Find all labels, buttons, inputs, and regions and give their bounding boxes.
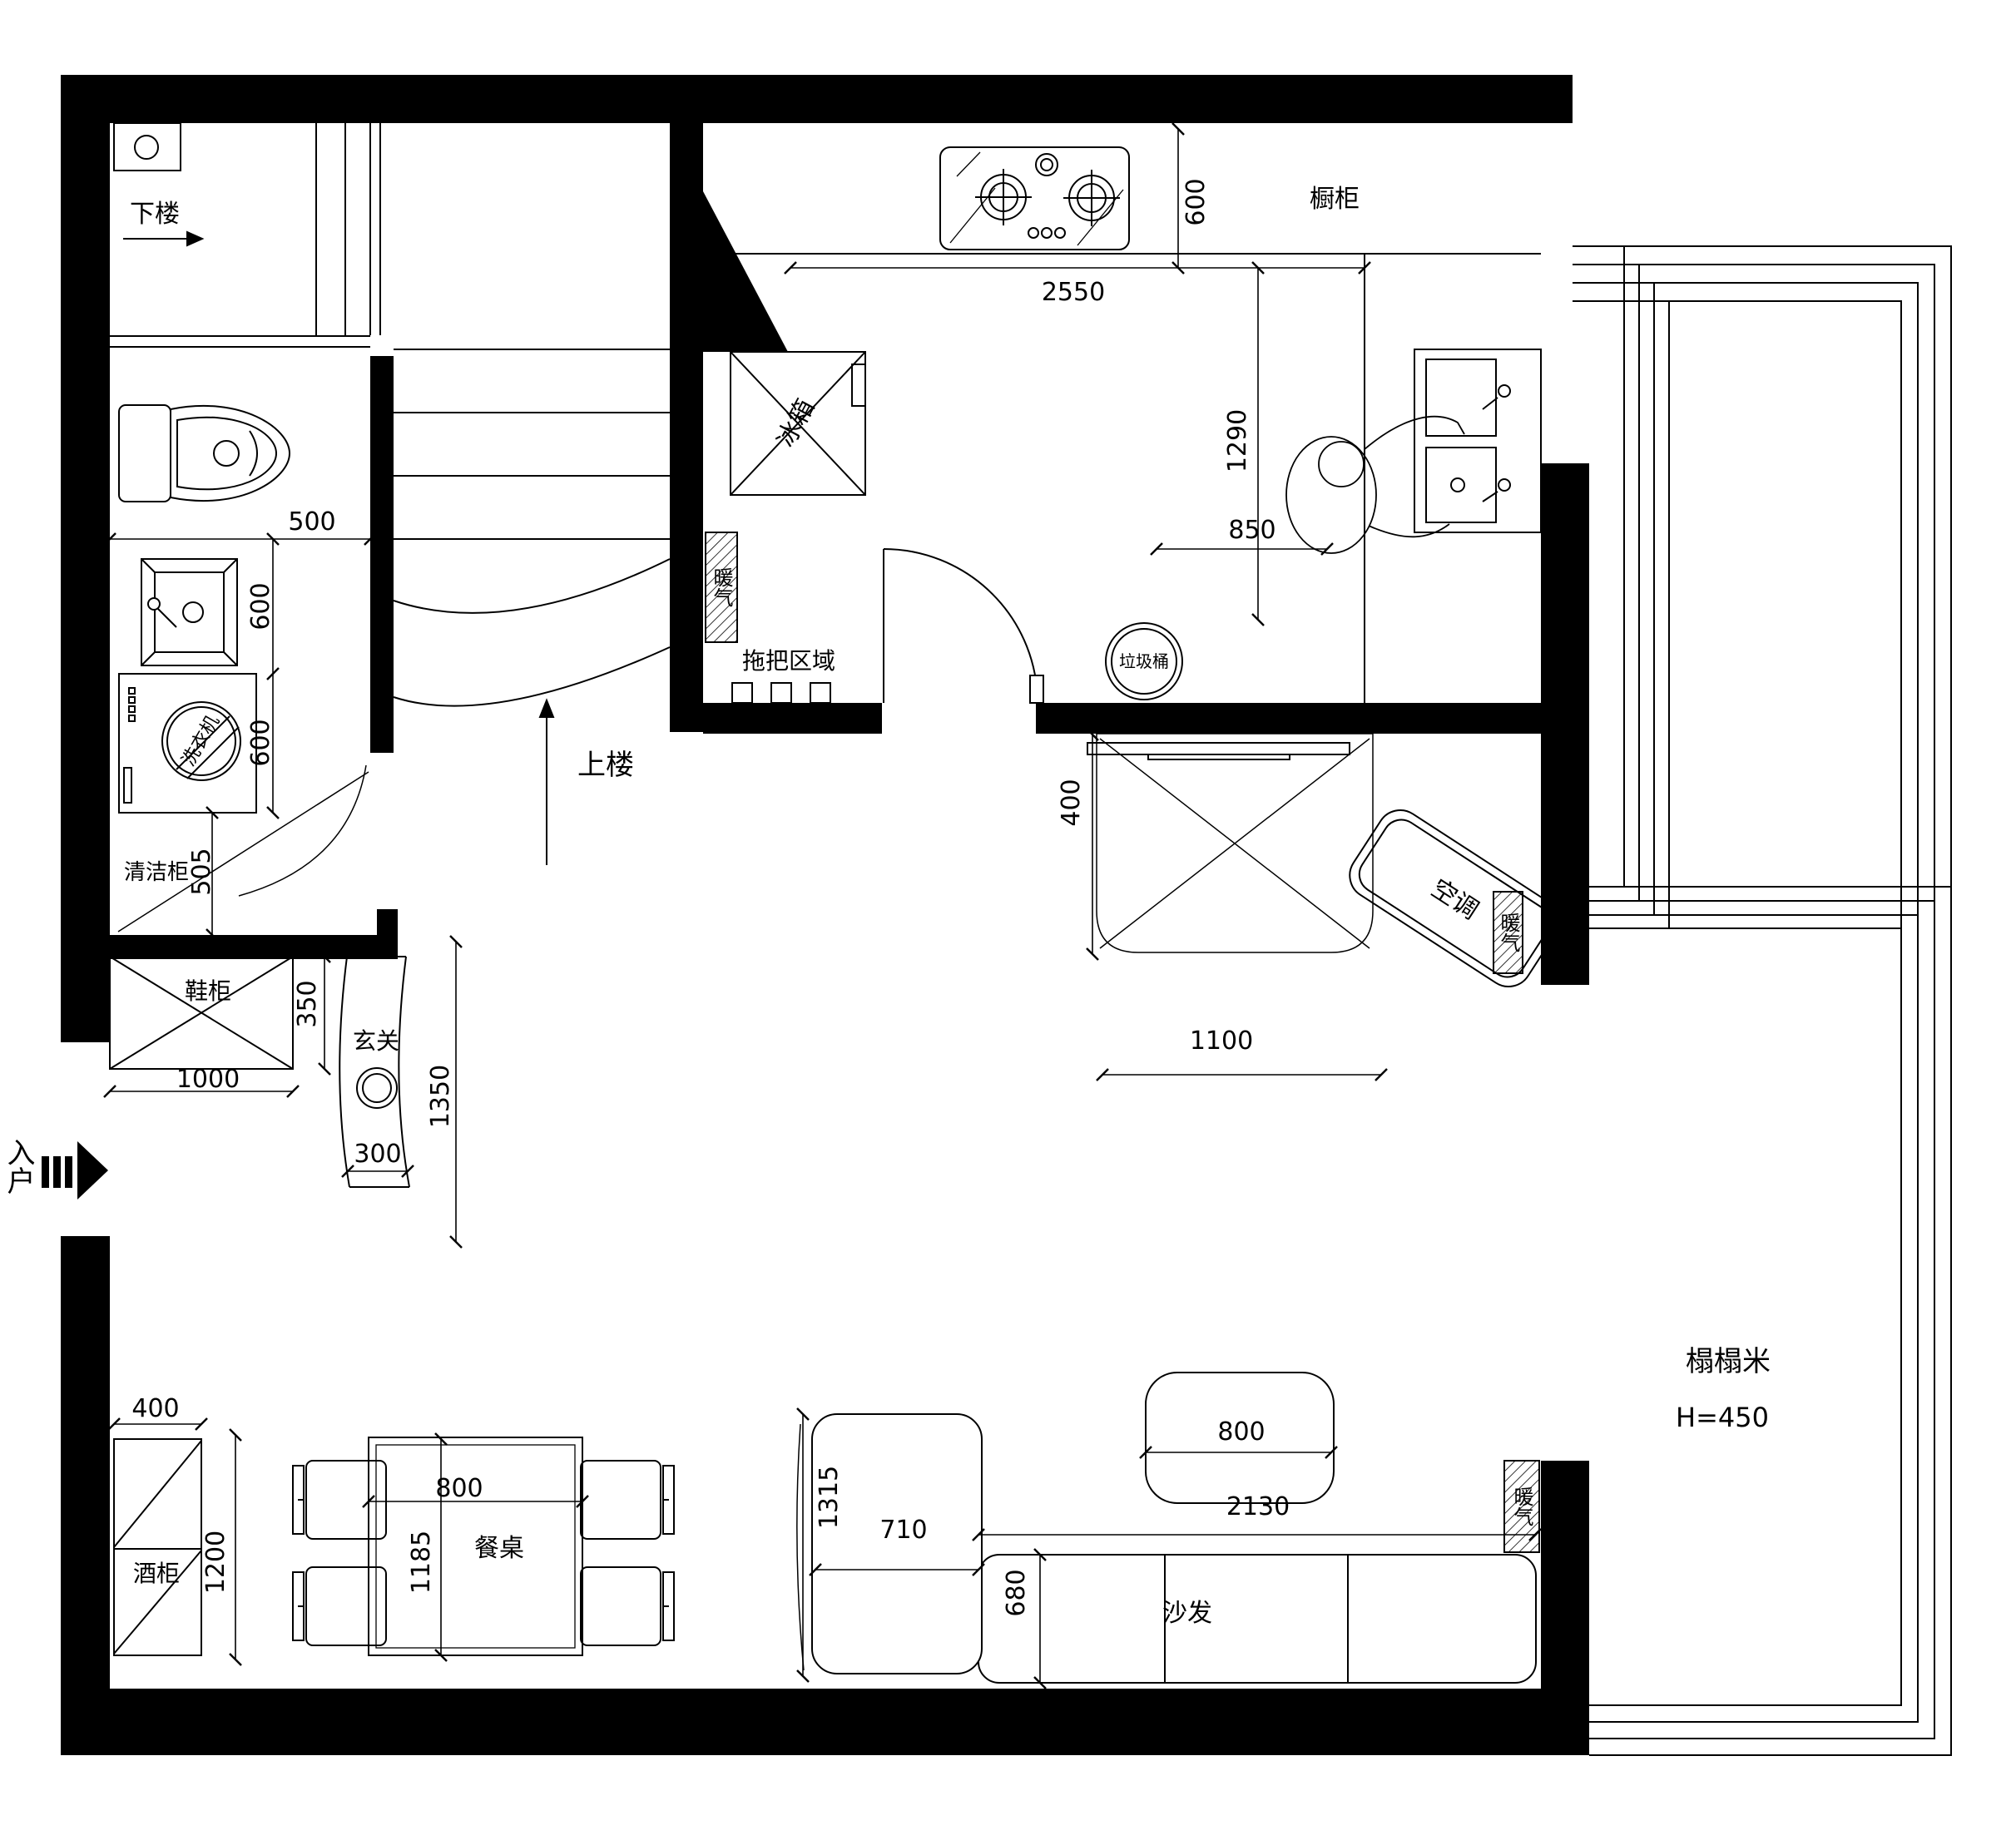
dim-shoe-depth: 350 xyxy=(295,980,320,1027)
dim-sofa-length: 2130 xyxy=(1226,1495,1290,1520)
wall-left-upper xyxy=(61,75,110,1042)
entry-label: 入户 xyxy=(4,1138,32,1195)
wall-kitchen-bottom-right xyxy=(1036,703,1546,734)
kitchen-cabinet-label: 橱柜 xyxy=(1310,187,1360,212)
dim-sofa-depth: 680 xyxy=(1004,1569,1029,1616)
dim-shoe-width: 1000 xyxy=(176,1067,240,1092)
dim-counter-length: 2550 xyxy=(1042,280,1105,305)
shaft-symbol xyxy=(135,136,158,159)
toilet xyxy=(119,405,290,502)
sofa-label: 沙发 xyxy=(1162,1601,1212,1626)
kitchen-door xyxy=(884,549,1043,703)
sofa xyxy=(797,1414,1536,1683)
wall-corridor-jamb xyxy=(377,909,398,959)
wall-kitchen-bottom-left xyxy=(703,703,882,734)
living-room xyxy=(114,734,1568,1683)
bath-sink xyxy=(141,559,237,665)
dim-chaise-width: 710 xyxy=(879,1518,927,1543)
dim-screen-length: 1350 xyxy=(428,1065,453,1128)
wall-right-lower xyxy=(1541,1461,1589,1755)
dim-wine-width: 400 xyxy=(131,1397,179,1422)
floor-plan-drawing xyxy=(0,0,2016,1845)
wall-corridor xyxy=(110,935,377,959)
dim-tv-depth: 400 xyxy=(1059,779,1084,826)
dim-counter-depth: 600 xyxy=(1184,178,1209,225)
dim-island-length: 1290 xyxy=(1226,409,1251,472)
stairs-down-label: 下楼 xyxy=(130,202,180,227)
tv-unit xyxy=(1087,734,1373,952)
entrance-screen-label: 玄关 xyxy=(353,1030,399,1053)
tatami-balcony xyxy=(1573,246,1951,1755)
dim-screen-width: 300 xyxy=(354,1142,401,1167)
kitchen xyxy=(706,147,1541,703)
stairs-down-arrow-head xyxy=(187,232,202,245)
chair xyxy=(581,1567,674,1645)
gas-stove xyxy=(940,147,1129,250)
wine-cabinet-label: 酒柜 xyxy=(133,1562,180,1585)
stair-treads xyxy=(394,349,670,706)
dim-chaise-length: 1315 xyxy=(817,1466,842,1529)
dim-table-width: 800 xyxy=(435,1476,483,1501)
stairs-up-label: 上楼 xyxy=(577,751,634,779)
stairs-up-arrow-head xyxy=(540,700,553,717)
kitchen-sink xyxy=(1414,349,1541,532)
floor-plan: 下楼 上楼 入户 玄关 鞋柜 清洁柜 洗衣机 冰箱 橱柜 暖气 拖把区域 垃圾桶… xyxy=(0,0,2016,1845)
wall-kitchen-flue xyxy=(703,191,788,352)
dim-bath-sink: 600 xyxy=(249,582,274,630)
chair xyxy=(581,1461,674,1539)
dim-washer: 600 xyxy=(249,719,274,766)
living-heater-label: 暖气 xyxy=(1498,913,1518,952)
dim-wine-length: 1200 xyxy=(204,1531,229,1594)
dim-toilet-zone: 500 xyxy=(288,510,335,535)
tatami-height-label: H=450 xyxy=(1676,1404,1769,1431)
chair xyxy=(293,1567,386,1645)
trash-bin-label: 垃圾桶 xyxy=(1119,653,1169,670)
wall-top xyxy=(61,75,1573,123)
dim-tv-width: 1100 xyxy=(1190,1029,1253,1054)
chair xyxy=(293,1461,386,1539)
dim-table-length: 1185 xyxy=(409,1531,434,1594)
shaft-box xyxy=(114,123,181,171)
wall-kitchen-left xyxy=(670,123,703,732)
kitchen-heater-label: 暖气 xyxy=(711,567,731,607)
tatami-label: 榻榻米 xyxy=(1686,1348,1771,1376)
cleaning-cabinet-label: 清洁柜 xyxy=(124,862,189,883)
sofa-heater-label: 暖气 xyxy=(1512,1486,1532,1526)
wall-bottom xyxy=(61,1689,1541,1755)
wine-cabinet xyxy=(114,1439,201,1655)
bathroom xyxy=(118,405,369,932)
dining-table-label: 餐桌 xyxy=(474,1536,524,1561)
wall-right-upper xyxy=(1541,463,1589,985)
shoe-cabinet-label: 鞋柜 xyxy=(185,980,231,1003)
dim-coffee-table: 800 xyxy=(1217,1420,1265,1445)
mop-area-squares xyxy=(732,683,830,703)
entry-arrow xyxy=(42,1141,108,1199)
mop-area-label: 拖把区域 xyxy=(742,650,835,673)
dim-cleaning: 505 xyxy=(190,848,215,895)
dim-island-width: 850 xyxy=(1228,518,1275,543)
wall-left-lower xyxy=(61,1236,110,1755)
bath-door-arc xyxy=(239,765,366,896)
shoe-cabinet xyxy=(110,957,293,1069)
wall-bath-divider xyxy=(370,356,394,753)
